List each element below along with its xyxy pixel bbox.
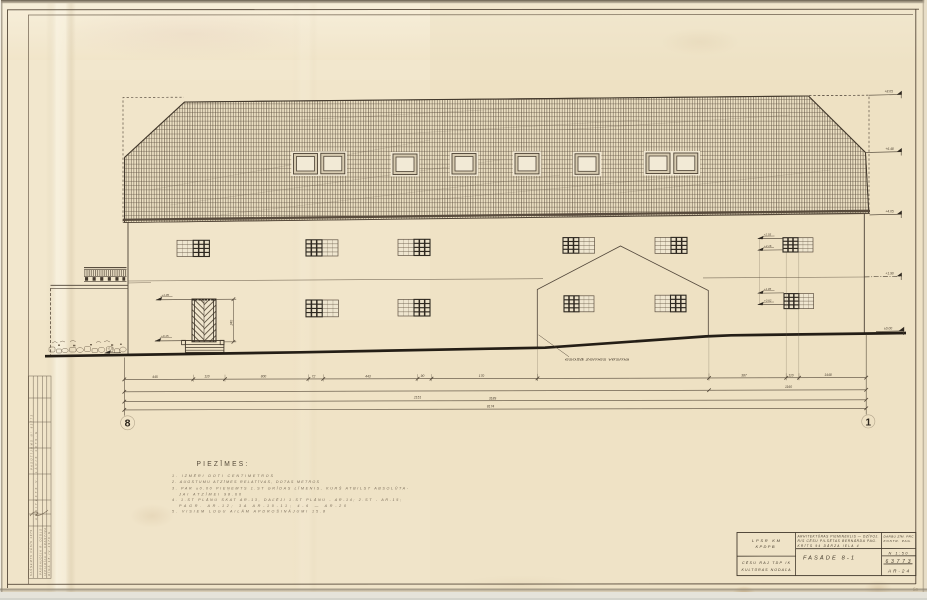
svg-text:387: 387 [741,373,747,377]
svg-text:+2.55: +2.55 [764,232,772,236]
svg-text:PAGR. AR-12; 3A AR-10-11;: PAGR. AR-12; 3A AR-10-11; 4-6 — AR-20 [179,504,347,508]
svg-text:8174: 8174 [487,405,495,409]
svg-text:72: 72 [312,374,316,378]
svg-text:RIS CĒSU PILSĒTAS BERNĀRDA: RIS CĒSU PILSĒTAS BERNĀRDA PAG. [798,539,877,543]
svg-text:esošā zemes virsma: esošā zemes virsma [565,357,629,361]
svg-text:+8.05: +8.05 [885,90,894,94]
svg-text:KULTŪRAS NODAĽA: KULTŪRAS NODAĽA [742,568,792,572]
svg-text:2. AUGSTUMU ATZĪMES RELATĪVA: 2. AUGSTUMU ATZĪMES RELATĪVAS, DOTAS MET… [171,480,320,484]
svg-text:CĒSU RAJ TDP IK: CĒSU RAJ TDP IK [742,561,791,565]
svg-text:8: 8 [125,418,131,430]
svg-text:-0.35: -0.35 [108,347,115,351]
svg-text:+1.05: +1.05 [162,293,170,297]
svg-text:445: 445 [152,375,158,379]
svg-text:PĀRBAUDĪJA R. OZOLS: PĀRBAUDĪJA R. OZOLS [39,529,43,575]
svg-text:2151: 2151 [413,396,422,400]
svg-text:1: 1 [866,417,872,428]
svg-text:ARHITEKTŪRAS PIEMINEKLIS — DZ: ARHITEKTŪRAS PIEMINEKLIS — DZĪVOJ. [797,535,879,539]
svg-text:90: 90 [421,374,425,378]
svg-text:170: 170 [479,374,485,378]
svg-text:4. 1.ST PLĀNU SKAT AR-13,: 4. 1.ST PLĀNU SKAT AR-13, DAĽĒJI 1.ST PL… [172,498,401,502]
svg-text:1160: 1160 [785,385,792,389]
svg-text:IZPILDĪJA A. KRASTIŅA: IZPILDĪJA A. KRASTIŅA [43,528,47,576]
svg-text:240: 240 [229,320,233,327]
svg-text:RĪGĀ 18.IV 1979.G: RĪGĀ 18.IV 1979.G [47,532,51,576]
svg-text:+6.48: +6.48 [885,147,894,151]
svg-text:±0.00: ±0.00 [884,327,892,331]
svg-text:+4.05: +4.05 [885,209,894,213]
svg-text:+1.05: +1.05 [764,287,772,291]
svg-text:+0.15: +0.15 [161,334,169,338]
svg-text:443: 443 [365,374,371,378]
svg-text:1448: 1448 [824,373,832,377]
svg-text:LPSR KM: LPSR KM [752,538,781,543]
svg-text:110: 110 [204,375,209,379]
svg-text:+2.16: +2.16 [764,244,772,248]
svg-text:800: 800 [261,375,267,379]
svg-text:KRĪTS 94 DĀRZA IELA 4: KRĪTS 94 DĀRZA IELA 4 [798,544,859,548]
svg-text:JAI ATZĪMEI 98.60: JAI ATZĪMEI 98.60 [178,492,242,496]
svg-text:AR-24: AR-24 [887,569,909,574]
svg-text:3189: 3189 [489,396,497,400]
svg-text:FASĀDE 8-1: FASĀDE 8-1 [803,555,854,562]
svg-text:+1.90: +1.90 [885,271,894,275]
svg-text:PIEZĪMES:: PIEZĪMES: [197,459,250,468]
svg-text:110: 110 [788,373,793,377]
svg-text:+0.62: +0.62 [764,298,772,302]
svg-text:DARBU ZĪM. PRC: DARBU ZĪM. PRC [884,535,915,539]
svg-text:KONTR. PAG.: KONTR. PAG. [884,539,912,543]
